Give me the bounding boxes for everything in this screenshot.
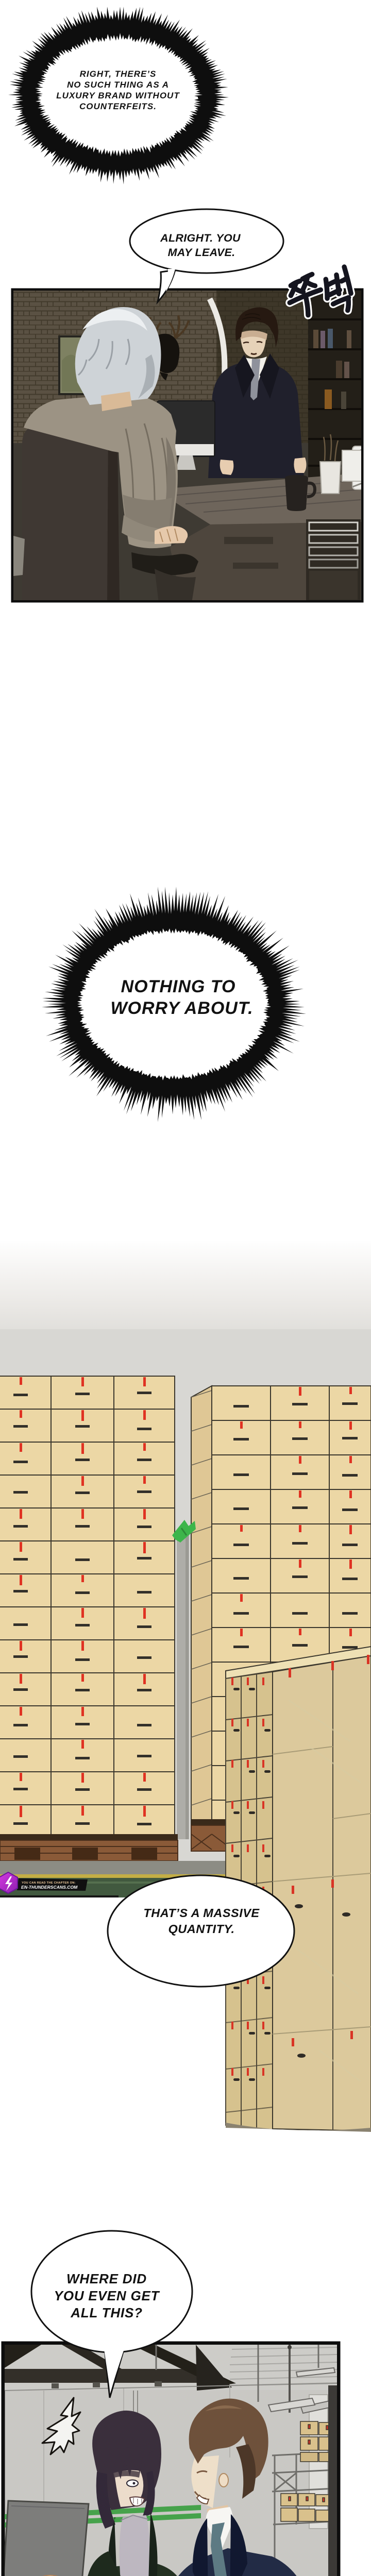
svg-text:NOTHING TO: NOTHING TO xyxy=(121,977,236,996)
svg-text:RIGHT, THERE’S: RIGHT, THERE’S xyxy=(80,69,157,79)
svg-text:LUXURY BRAND WITHOUT: LUXURY BRAND WITHOUT xyxy=(56,91,180,100)
svg-text:QUANTITY.: QUANTITY. xyxy=(168,1922,235,1936)
svg-text:COUNTERFEITS.: COUNTERFEITS. xyxy=(79,101,157,111)
svg-text:WHERE DID: WHERE DID xyxy=(66,2271,147,2286)
svg-text:MAY LEAVE.: MAY LEAVE. xyxy=(168,246,235,259)
svg-text:YOU EVEN GET: YOU EVEN GET xyxy=(54,2288,160,2303)
svg-text:NO SUCH THING AS A: NO SUCH THING AS A xyxy=(67,80,169,90)
svg-text:EN-THUNDERSCANS.COM: EN-THUNDERSCANS.COM xyxy=(21,1885,78,1890)
svg-text:ALL THIS?: ALL THIS? xyxy=(70,2305,143,2320)
svg-text:ALRIGHT. YOU: ALRIGHT. YOU xyxy=(160,232,241,244)
svg-text:THAT’S A MASSIVE: THAT’S A MASSIVE xyxy=(143,1906,260,1920)
svg-text:WORRY ABOUT.: WORRY ABOUT. xyxy=(110,998,253,1018)
